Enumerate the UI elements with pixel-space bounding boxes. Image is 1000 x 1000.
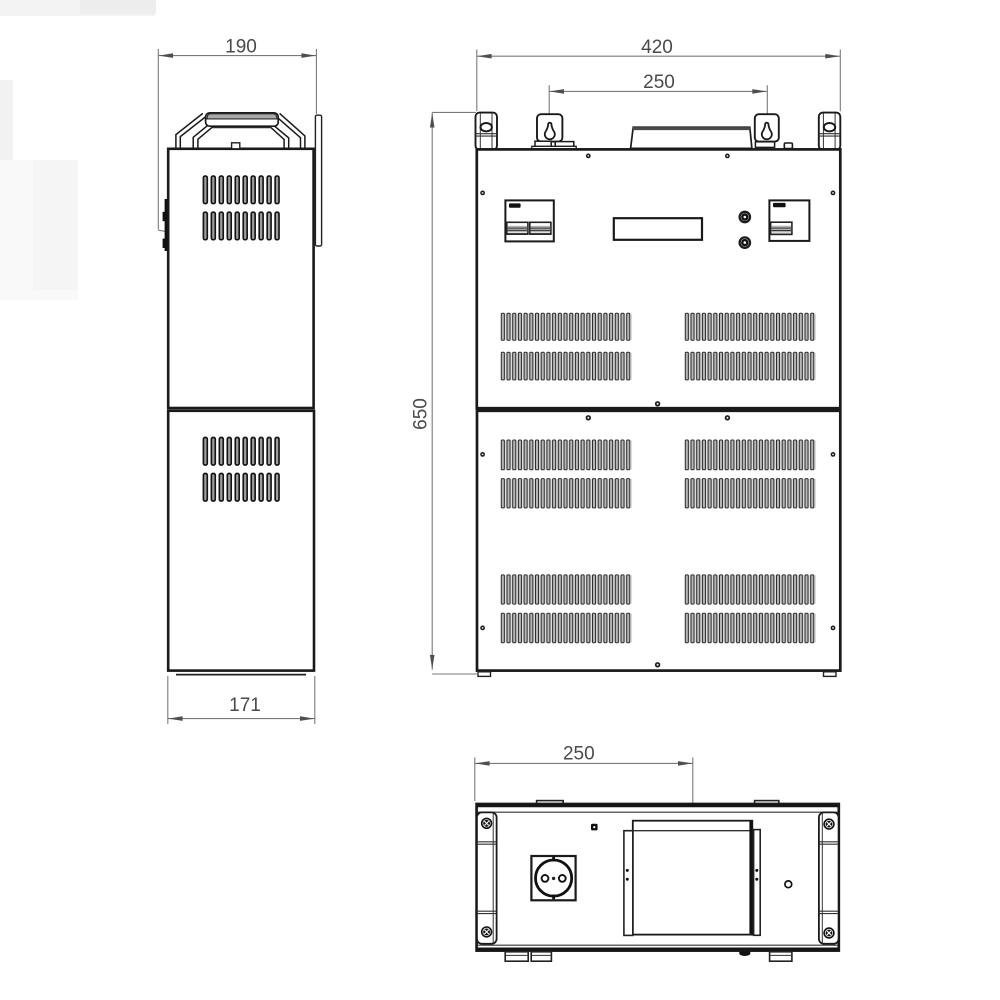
svg-text:190: 190	[225, 37, 257, 58]
svg-text:250: 250	[563, 744, 595, 765]
svg-text:171: 171	[229, 695, 261, 716]
svg-text:250: 250	[643, 72, 675, 93]
svg-text:650: 650	[411, 398, 432, 430]
svg-text:420: 420	[641, 37, 673, 58]
